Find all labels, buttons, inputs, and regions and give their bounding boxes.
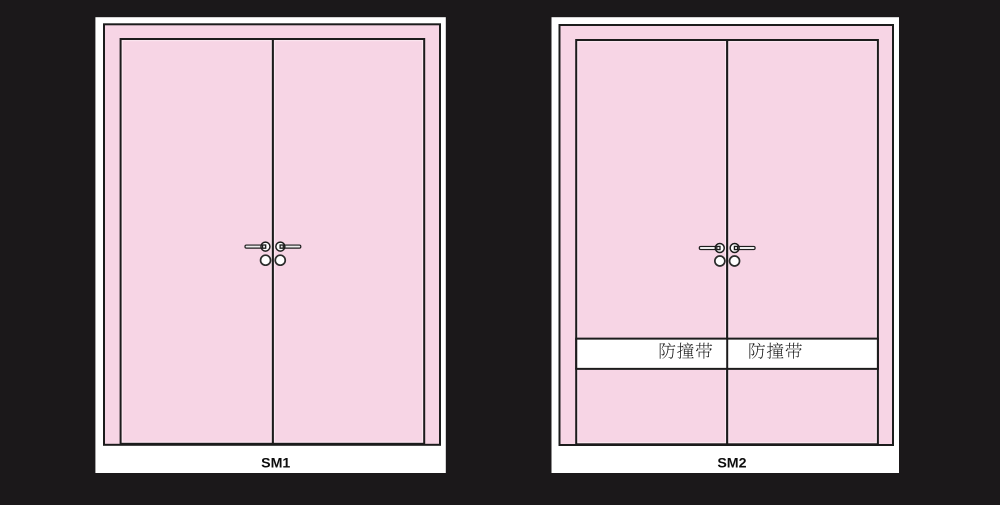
svg-text:SM1: SM1 xyxy=(261,456,290,472)
svg-text:SM2: SM2 xyxy=(717,456,746,472)
